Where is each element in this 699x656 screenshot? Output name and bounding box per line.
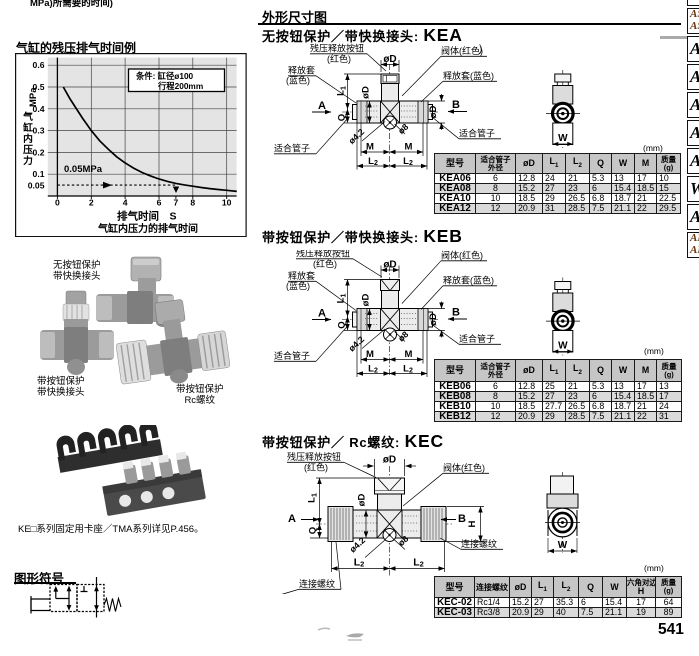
svg-text:M: M (366, 142, 374, 153)
svg-text:W: W (558, 133, 568, 144)
svg-text:øD: øD (383, 455, 396, 466)
svg-text:1: 1 (312, 493, 319, 497)
svg-text:排气时间 S: 排气时间 S (117, 210, 177, 223)
svg-text:0: 0 (55, 198, 60, 208)
svg-text:力: 力 (23, 154, 33, 167)
svg-text:2: 2 (89, 198, 94, 208)
svg-text:4: 4 (123, 198, 128, 208)
svg-text:1: 1 (341, 294, 348, 298)
svg-text:øD: øD (361, 86, 372, 99)
svg-text:(红色): (红色) (327, 53, 351, 64)
svg-text:L2: L2 (368, 364, 378, 375)
svg-text:øD: øD (361, 294, 372, 307)
svg-text:0.1: 0.1 (33, 169, 45, 179)
svg-text:残压释放按钮: 残压释放按钮 (287, 451, 341, 462)
svg-text:释放套: 释放套 (288, 270, 315, 281)
svg-text:M: M (405, 142, 413, 153)
svg-text:L2: L2 (368, 156, 378, 167)
svg-text:6: 6 (157, 198, 162, 208)
svg-text:0.3: 0.3 (33, 126, 45, 136)
svg-text:(红色): (红色) (304, 461, 328, 472)
svg-text:适合管子: 适合管子 (459, 333, 495, 344)
svg-text:行程200mm: 行程200mm (157, 81, 203, 91)
svg-text:压: 压 (23, 144, 33, 156)
svg-text:W: W (558, 540, 568, 551)
svg-text:ø8: ø8 (396, 122, 410, 136)
svg-text:ø4.2: ø4.2 (347, 127, 367, 146)
svg-text:B: B (452, 99, 460, 111)
svg-text:0.6: 0.6 (33, 60, 45, 70)
svg-text:M: M (366, 349, 374, 360)
svg-text:气: 气 (22, 110, 33, 123)
svg-text:释放套: 释放套 (288, 65, 315, 76)
svg-text:内: 内 (23, 132, 33, 145)
svg-text:7: 7 (174, 198, 179, 208)
svg-text:(红色): (红色) (313, 258, 337, 269)
svg-text:阀体(红色): 阀体(红色) (441, 250, 483, 261)
svg-text:适合管子: 适合管子 (459, 128, 495, 139)
svg-text:8: 8 (190, 198, 195, 208)
svg-text:L2: L2 (403, 364, 413, 375)
svg-text:残压释放按钮: 残压释放按钮 (296, 250, 350, 259)
svg-text:ø8: ø8 (396, 329, 410, 343)
svg-text:øD: øD (383, 260, 396, 271)
svg-text:B: B (458, 513, 466, 525)
svg-text:Q: Q (308, 527, 319, 534)
svg-text:M: M (405, 349, 413, 360)
svg-text:L2: L2 (403, 156, 413, 167)
svg-text:øD: øD (383, 54, 396, 65)
svg-text:缸: 缸 (22, 121, 33, 134)
svg-text:适合管子: 适合管子 (274, 143, 310, 154)
svg-text:连接螺纹: 连接螺纹 (461, 538, 497, 549)
svg-text:阀体(红色): 阀体(红色) (441, 45, 483, 56)
svg-text:A: A (288, 513, 296, 525)
svg-text:1: 1 (341, 86, 348, 90)
svg-text:适合管子: 适合管子 (274, 350, 310, 361)
svg-text:øD: øD (357, 494, 368, 507)
svg-text:0.05MPa: 0.05MPa (64, 164, 103, 175)
svg-text:连接螺纹: 连接螺纹 (299, 578, 335, 589)
svg-text:条件: 缸径ø100: 条件: 缸径ø100 (135, 71, 194, 81)
svg-text:释放套(蓝色): 释放套(蓝色) (443, 70, 494, 81)
svg-text:释放套(蓝色): 释放套(蓝色) (443, 275, 494, 286)
svg-text:øD: øD (428, 313, 439, 326)
svg-text:A: A (318, 308, 326, 320)
svg-text:0.05: 0.05 (28, 180, 45, 190)
svg-text:残压释放按钮: 残压释放按钮 (310, 43, 364, 54)
svg-text:H: H (467, 520, 478, 527)
svg-text:10: 10 (222, 198, 232, 208)
svg-text:A: A (318, 100, 326, 112)
svg-text:气缸内压力的排气时间: 气缸内压力的排气时间 (97, 222, 198, 235)
svg-text:MPa: MPa (28, 87, 39, 107)
svg-text:0.2: 0.2 (33, 147, 45, 157)
svg-text:阀体(红色): 阀体(红色) (443, 462, 485, 473)
svg-text:L2: L2 (354, 557, 365, 569)
svg-text:øD: øD (428, 106, 439, 119)
svg-text:W: W (558, 341, 568, 352)
svg-text:ø4.2: ø4.2 (347, 334, 367, 353)
svg-text:L2: L2 (413, 557, 424, 569)
svg-text:B: B (452, 307, 460, 319)
